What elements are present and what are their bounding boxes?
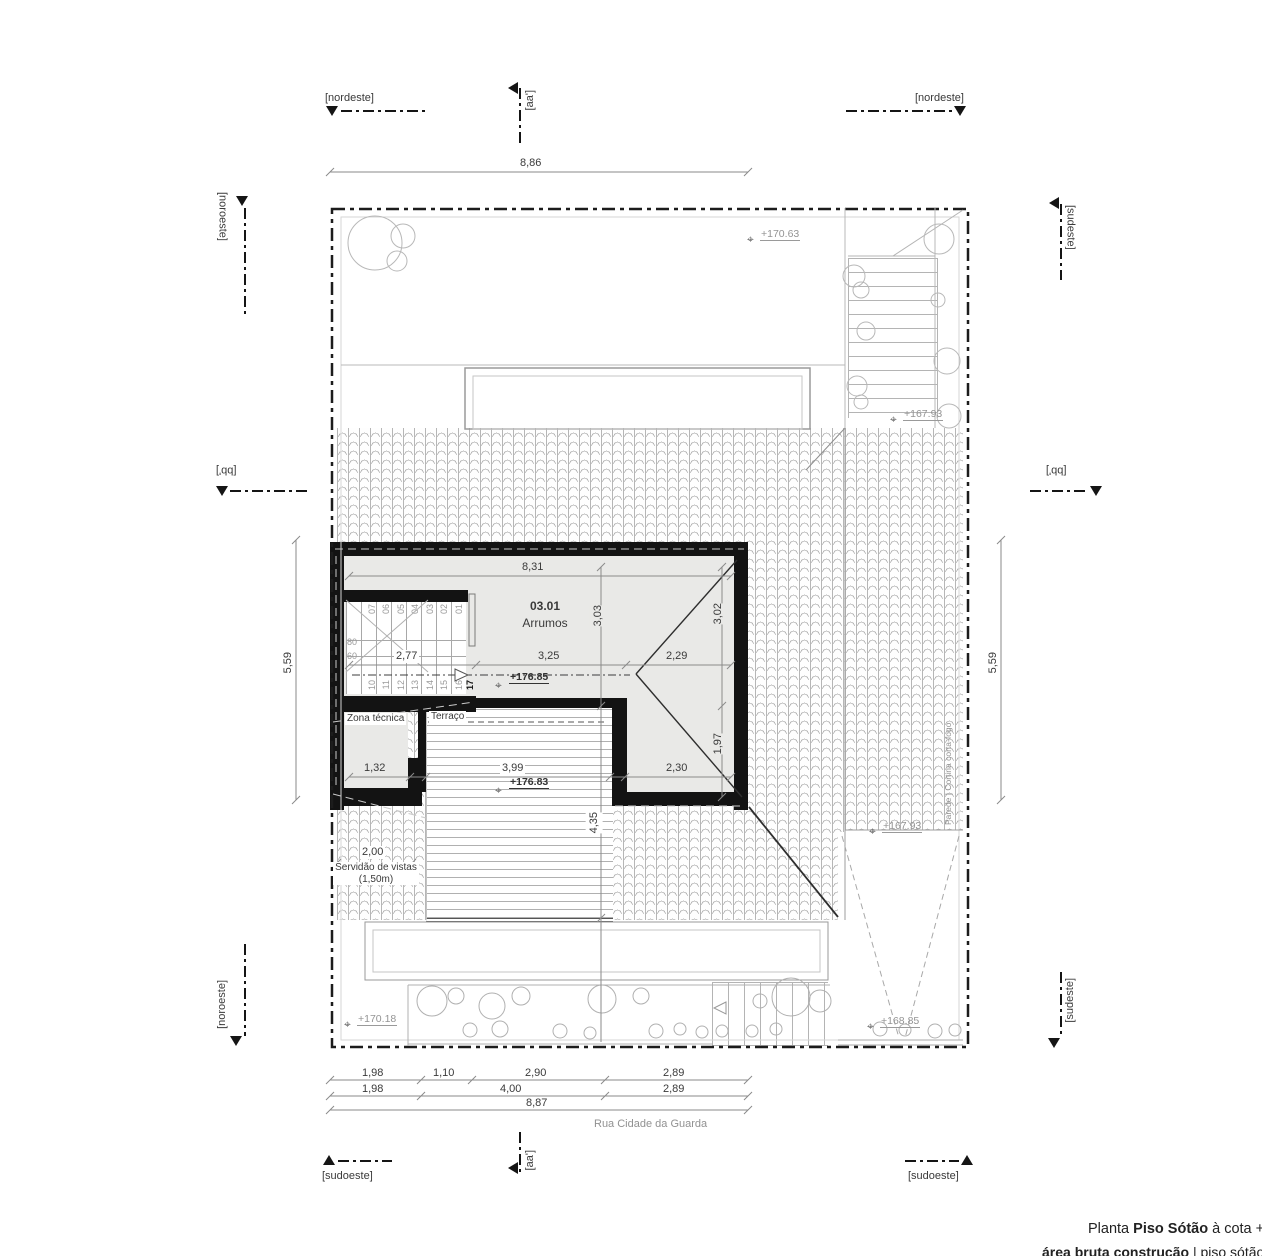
marker-sudoeste-left: [sudoeste] <box>322 1170 373 1183</box>
sheet-subtitle: área bruta construção | piso sótão = 03 <box>1042 1244 1262 1256</box>
dim-text: 2,90 <box>525 1067 546 1080</box>
level-label: +168.85 <box>880 1015 920 1028</box>
stair-tread-number: 12 <box>397 680 406 690</box>
marker-arrow-icon <box>230 1036 242 1046</box>
level-marker-icon: ⌖ <box>495 784 502 796</box>
dim-text: 8,87 <box>526 1097 547 1110</box>
wall <box>330 542 344 810</box>
level-marker-icon: ⌖ <box>890 413 897 425</box>
level-marker-icon: ⌖ <box>344 1018 351 1030</box>
stair-rise-label: 80 <box>347 638 357 647</box>
marker-arrow-icon <box>1048 1038 1060 1048</box>
wall <box>330 542 748 556</box>
section-bb-line <box>230 490 310 492</box>
wall <box>344 590 468 602</box>
site-stairs-upper <box>848 258 938 418</box>
stair-tread-number: 02 <box>440 604 449 614</box>
room-label-terraco: Terraço <box>429 711 466 723</box>
dim-text: 4,00 <box>500 1083 521 1096</box>
stair-landing-line <box>346 640 466 641</box>
subtitle-bold: área bruta construção <box>1042 1244 1189 1256</box>
marker-arrow-icon <box>236 196 248 206</box>
dim-text: 1,10 <box>433 1067 454 1080</box>
marker-line <box>244 208 246 318</box>
marker-line <box>1060 204 1062 280</box>
level-label: +176.85 <box>509 671 549 684</box>
level-label: +167.93 <box>882 820 922 833</box>
dim-text: 2,89 <box>663 1083 684 1096</box>
level-marker-icon: ⌖ <box>869 825 876 837</box>
site-stairs-lower <box>712 982 828 1046</box>
section-bb-line <box>1030 490 1088 492</box>
marker-line <box>244 944 246 1036</box>
dim-text: 2,00 <box>360 846 385 859</box>
marker-noroeste-top: [noroeste] <box>216 192 229 241</box>
level-label: +170.63 <box>760 228 800 241</box>
stair-tread-number: 05 <box>397 604 406 614</box>
section-aa-line <box>519 1132 521 1176</box>
stair-tread-number: 17 <box>466 680 475 690</box>
servidao-line1: Servidão de vistas <box>335 862 417 873</box>
stair-tread-number: 11 <box>382 680 391 689</box>
stair-tread-number: 15 <box>440 680 449 690</box>
wall <box>418 712 426 760</box>
dim-text: 1,32 <box>362 762 387 775</box>
level-marker-icon: ⌖ <box>747 233 754 245</box>
section-bb-label-left: [bb'] <box>216 464 236 477</box>
stair-tread-number: 13 <box>411 680 420 690</box>
marker-line <box>905 1160 959 1162</box>
dim-text: 8,31 <box>520 561 545 574</box>
marker-line <box>338 1160 392 1162</box>
room-label-zona-tecnica: Zona técnica <box>345 713 406 725</box>
section-aa-label: [aa'] <box>524 90 537 110</box>
marker-nordeste-right: [nordeste] <box>915 92 964 105</box>
street-name: Rua Cidade da Guarda <box>594 1118 707 1131</box>
servidao-label: Servidão de vistas (1,50m) <box>333 862 419 885</box>
level-label: +167.93 <box>903 408 943 421</box>
section-aa-line <box>519 88 521 144</box>
section-aa-arrow-icon <box>508 1162 518 1174</box>
section-bb-arrow-icon <box>1090 486 1102 496</box>
wall <box>476 698 618 708</box>
stair-tread-number: 04 <box>411 604 420 614</box>
marker-line <box>341 110 425 112</box>
stair-going-label: 60 <box>347 652 357 661</box>
dim-text: 3,25 <box>536 650 561 663</box>
room-number: 03.01 <box>495 600 595 614</box>
marker-sudeste-top: [sudeste] <box>1064 205 1077 250</box>
dim-text: 1,97 <box>710 733 727 754</box>
marker-sudoeste-right: [sudoeste] <box>908 1170 959 1183</box>
section-aa-label: [aa'] <box>524 1150 537 1170</box>
sheet-title: Planta Piso Sótão à cota +178 <box>1088 1221 1262 1237</box>
stair-tread-number: 16 <box>455 680 464 690</box>
marker-arrow-icon <box>1049 197 1059 209</box>
marker-arrow-icon <box>954 106 966 116</box>
section-bb-label-right: [bb'] <box>1046 464 1066 477</box>
stair-tread-number: 01 <box>455 604 464 614</box>
title-name: Piso Sótão <box>1133 1221 1208 1237</box>
marker-sudeste-bottom: [sudeste] <box>1064 978 1077 1023</box>
wall <box>612 698 627 804</box>
dim-text: 2,77 <box>394 650 419 663</box>
firewall-label: Parede | Cortina corta-fogo <box>944 645 954 825</box>
stair-tread-number: 07 <box>368 604 377 614</box>
marker-arrow-icon <box>961 1155 973 1165</box>
dim-text: 5,59 <box>282 652 295 673</box>
dim-text: 2,89 <box>663 1067 684 1080</box>
marker-line <box>1060 972 1062 1038</box>
level-label: +170.18 <box>357 1013 397 1026</box>
wall <box>734 542 748 810</box>
dim-text: 2,30 <box>664 762 689 775</box>
servidao-line2: (1,50m) <box>359 874 393 885</box>
stair-tread-number: 14 <box>426 680 435 690</box>
terrace-deck <box>426 706 613 922</box>
title-suffix: à cota +178 <box>1208 1221 1262 1237</box>
level-marker-icon: ⌖ <box>867 1020 874 1032</box>
marker-noroeste-bottom: [noroeste] <box>216 980 229 1029</box>
dim-text: 1,98 <box>362 1083 383 1096</box>
stair-tread-number: 06 <box>382 604 391 614</box>
marker-line <box>846 110 952 112</box>
dim-text: 3,02 <box>710 603 727 624</box>
marker-nordeste-left: [nordeste] <box>325 92 374 105</box>
wall <box>408 758 426 792</box>
title-prefix: Planta <box>1088 1221 1133 1237</box>
dim-text: 3,99 <box>500 762 525 775</box>
wall <box>330 696 476 712</box>
dim-text: 2,29 <box>664 650 689 663</box>
floor-plan-sheet: ⌖ +170.63 ⌖ +167.93 ⌖ +167.93 ⌖ +168.85 … <box>0 0 1262 1256</box>
driveway-ramp-area <box>838 832 964 1042</box>
level-label: +176.83 <box>509 776 549 789</box>
stair-tread-number: 10 <box>368 680 377 690</box>
dim-text: 4,35 <box>586 812 603 833</box>
subtitle-rest: | piso sótão = 03 <box>1189 1244 1262 1256</box>
room-name: Arrumos <box>495 617 595 631</box>
marker-arrow-icon <box>323 1155 335 1165</box>
level-marker-icon: ⌖ <box>495 679 502 691</box>
stair-tread-number: 03 <box>426 604 435 614</box>
dim-text: 5,59 <box>987 652 1000 673</box>
section-bb-arrow-icon <box>216 486 228 496</box>
wall <box>612 792 748 806</box>
dim-text: 8,86 <box>518 157 543 170</box>
marker-arrow-icon <box>326 106 338 116</box>
dim-text: 1,98 <box>362 1067 383 1080</box>
section-aa-arrow-icon <box>508 82 518 94</box>
dim-text: 3,03 <box>590 605 607 626</box>
